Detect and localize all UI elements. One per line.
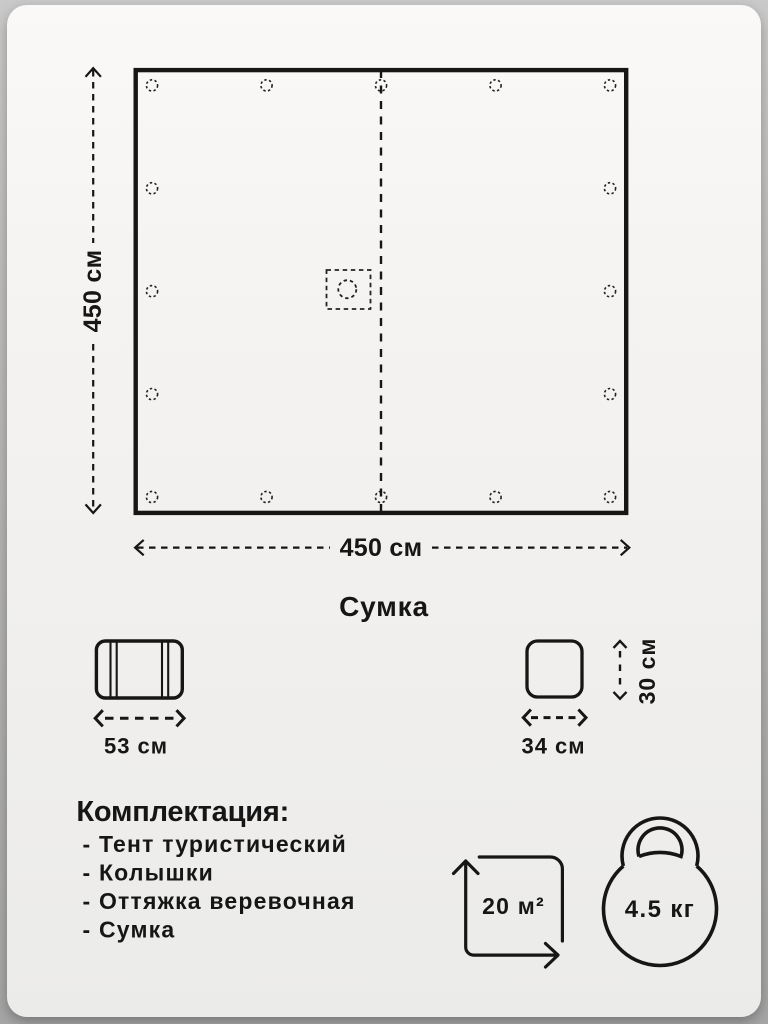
svg-text:20 м²: 20 м²: [482, 893, 545, 919]
svg-text:450 см: 450 см: [79, 250, 107, 333]
svg-text:Комплектация:: Комплектация:: [76, 796, 289, 828]
svg-text:Сумка: Сумка: [339, 591, 429, 622]
svg-text:- Оттяжка веревочная: - Оттяжка веревочная: [83, 888, 356, 914]
svg-text:- Колышки: - Колышки: [83, 860, 214, 886]
svg-text:- Сумка: - Сумка: [83, 917, 176, 943]
svg-text:53 см: 53 см: [104, 734, 168, 759]
svg-text:34 см: 34 см: [521, 734, 585, 759]
svg-text:30 см: 30 см: [634, 638, 660, 705]
svg-text:4.5 кг: 4.5 кг: [625, 896, 695, 923]
svg-text:450 см: 450 см: [340, 534, 423, 562]
svg-text:- Тент туристический: - Тент туристический: [83, 831, 347, 857]
